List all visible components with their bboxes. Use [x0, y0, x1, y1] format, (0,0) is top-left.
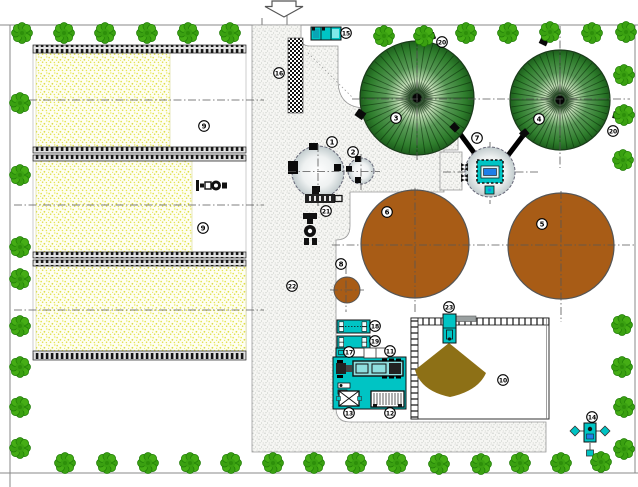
svg-text:15: 15: [342, 30, 350, 37]
tree-icon: [510, 453, 531, 474]
label-marker-16: 16: [274, 68, 285, 79]
tree-icon: [540, 22, 561, 43]
svg-text:19: 19: [371, 338, 379, 345]
conveyor: [443, 314, 456, 343]
tree-icon: [97, 453, 118, 474]
tree-icon: [12, 23, 33, 44]
tree-icon: [10, 357, 31, 378]
label-marker-22: 22: [287, 281, 298, 292]
site-plan-drawing: 1234567899101112131415161718192020212223: [0, 0, 638, 487]
tree-icon: [582, 23, 603, 44]
label-marker-9: 9: [199, 121, 210, 132]
svg-text:20: 20: [438, 39, 446, 46]
silage-clamps: [33, 45, 246, 360]
bunker-rail: [456, 316, 476, 322]
tree-icon: [591, 452, 612, 473]
svg-text:21: 21: [322, 208, 330, 215]
clamp-wall: [33, 155, 246, 161]
label-marker-12: 12: [385, 408, 396, 419]
cooler-12: [371, 391, 404, 407]
label-marker-4: 4: [534, 114, 545, 125]
tree-icon: [55, 453, 76, 474]
pump-unit: [484, 169, 497, 176]
tree-icon: [178, 23, 199, 44]
tree-icon: [614, 105, 635, 126]
svg-text:20: 20: [609, 128, 617, 135]
svg-text:7: 7: [475, 134, 480, 142]
label-marker-10: 10: [498, 375, 509, 386]
tree-icon: [374, 26, 395, 47]
svg-text:16: 16: [275, 70, 283, 77]
svg-text:12: 12: [386, 410, 394, 417]
unit-13: [337, 391, 362, 406]
tree-icon: [429, 454, 450, 475]
tree-icon: [10, 93, 31, 114]
svg-text:11: 11: [386, 348, 394, 355]
svg-text:6: 6: [385, 208, 390, 216]
tree-icon: [387, 453, 408, 474]
tree-icon: [10, 438, 31, 459]
label-marker-20: 20: [608, 126, 619, 137]
site-plan-page: 1234567899101112131415161718192020212223: [0, 0, 638, 487]
svg-text:17: 17: [345, 349, 353, 356]
svg-text:13: 13: [345, 410, 353, 417]
svg-text:9: 9: [202, 122, 207, 130]
clamp-wall: [33, 351, 246, 360]
tree-icon: [616, 22, 637, 43]
tree-icon: [221, 453, 242, 474]
tree-icon: [414, 26, 435, 47]
label-marker-18: 18: [370, 321, 381, 332]
svg-text:23: 23: [445, 304, 453, 311]
label-marker-14: 14: [587, 412, 598, 423]
tree-icon: [10, 316, 31, 337]
label-marker-1: 1: [327, 137, 338, 148]
label-marker-2: 2: [348, 147, 359, 158]
tree-icon: [614, 397, 635, 418]
label-marker-9: 9: [198, 223, 209, 234]
label-marker-11: 11: [385, 346, 396, 357]
tree-icon: [498, 23, 519, 44]
svg-text:5: 5: [540, 220, 545, 228]
label-marker-6: 6: [382, 207, 393, 218]
clamp-2-silage: [36, 161, 192, 252]
label-marker-8: 8: [336, 259, 347, 270]
svg-text:3: 3: [394, 114, 399, 122]
chp-module-19: [337, 336, 370, 348]
label-marker-17: 17: [344, 347, 355, 358]
checkered-strip: [288, 38, 303, 113]
clamp-3-silage: [36, 266, 246, 351]
svg-text:1: 1: [330, 138, 335, 146]
label-marker-7: 7: [472, 133, 483, 144]
tree-icon: [614, 65, 635, 86]
tree-icon: [220, 23, 241, 44]
tree-icon: [10, 397, 31, 418]
label-marker-23: 23: [444, 302, 455, 313]
weighbridge: [311, 27, 341, 40]
pump-station-pad: [440, 152, 462, 190]
clamp-wall: [33, 252, 246, 258]
chp-module-18: [337, 320, 370, 333]
label-marker-19: 19: [370, 336, 381, 347]
tree-icon: [180, 453, 201, 474]
clamp-wall: [33, 260, 246, 266]
tree-icon: [138, 453, 159, 474]
tree-icon: [137, 23, 158, 44]
tree-icon: [346, 453, 367, 474]
tree-icon: [95, 23, 116, 44]
label-marker-20: 20: [437, 37, 448, 48]
label-marker-5: 5: [537, 219, 548, 230]
tree-icon: [613, 150, 634, 171]
clamp-wall: [33, 45, 246, 53]
technical-building: [333, 348, 406, 409]
tree-icon: [551, 453, 572, 474]
tree-icon: [10, 269, 31, 290]
tree-icon: [612, 315, 633, 336]
svg-text:8: 8: [339, 260, 344, 268]
tree-icon: [263, 453, 284, 474]
svg-text:4: 4: [537, 115, 542, 123]
svg-text:18: 18: [371, 323, 379, 330]
label-marker-3: 3: [391, 113, 402, 124]
svg-text:22: 22: [288, 283, 296, 290]
tree-icon: [456, 23, 477, 44]
tree-icon: [10, 165, 31, 186]
svg-text:14: 14: [588, 414, 596, 421]
bunker-wall-top: [411, 318, 549, 325]
label-marker-13: 13: [344, 408, 355, 419]
svg-text:10: 10: [499, 377, 507, 384]
clamp-wall: [33, 147, 246, 153]
tree-icon: [471, 454, 492, 475]
label-marker-21: 21: [321, 206, 332, 217]
tree-icon: [614, 439, 635, 460]
label-marker-15: 15: [341, 28, 352, 39]
tree-icon: [54, 23, 75, 44]
tree-icon: [612, 357, 633, 378]
svg-text:2: 2: [351, 148, 356, 156]
svg-text:9: 9: [201, 224, 206, 232]
tree-icon: [304, 453, 325, 474]
tree-icon: [10, 237, 31, 258]
